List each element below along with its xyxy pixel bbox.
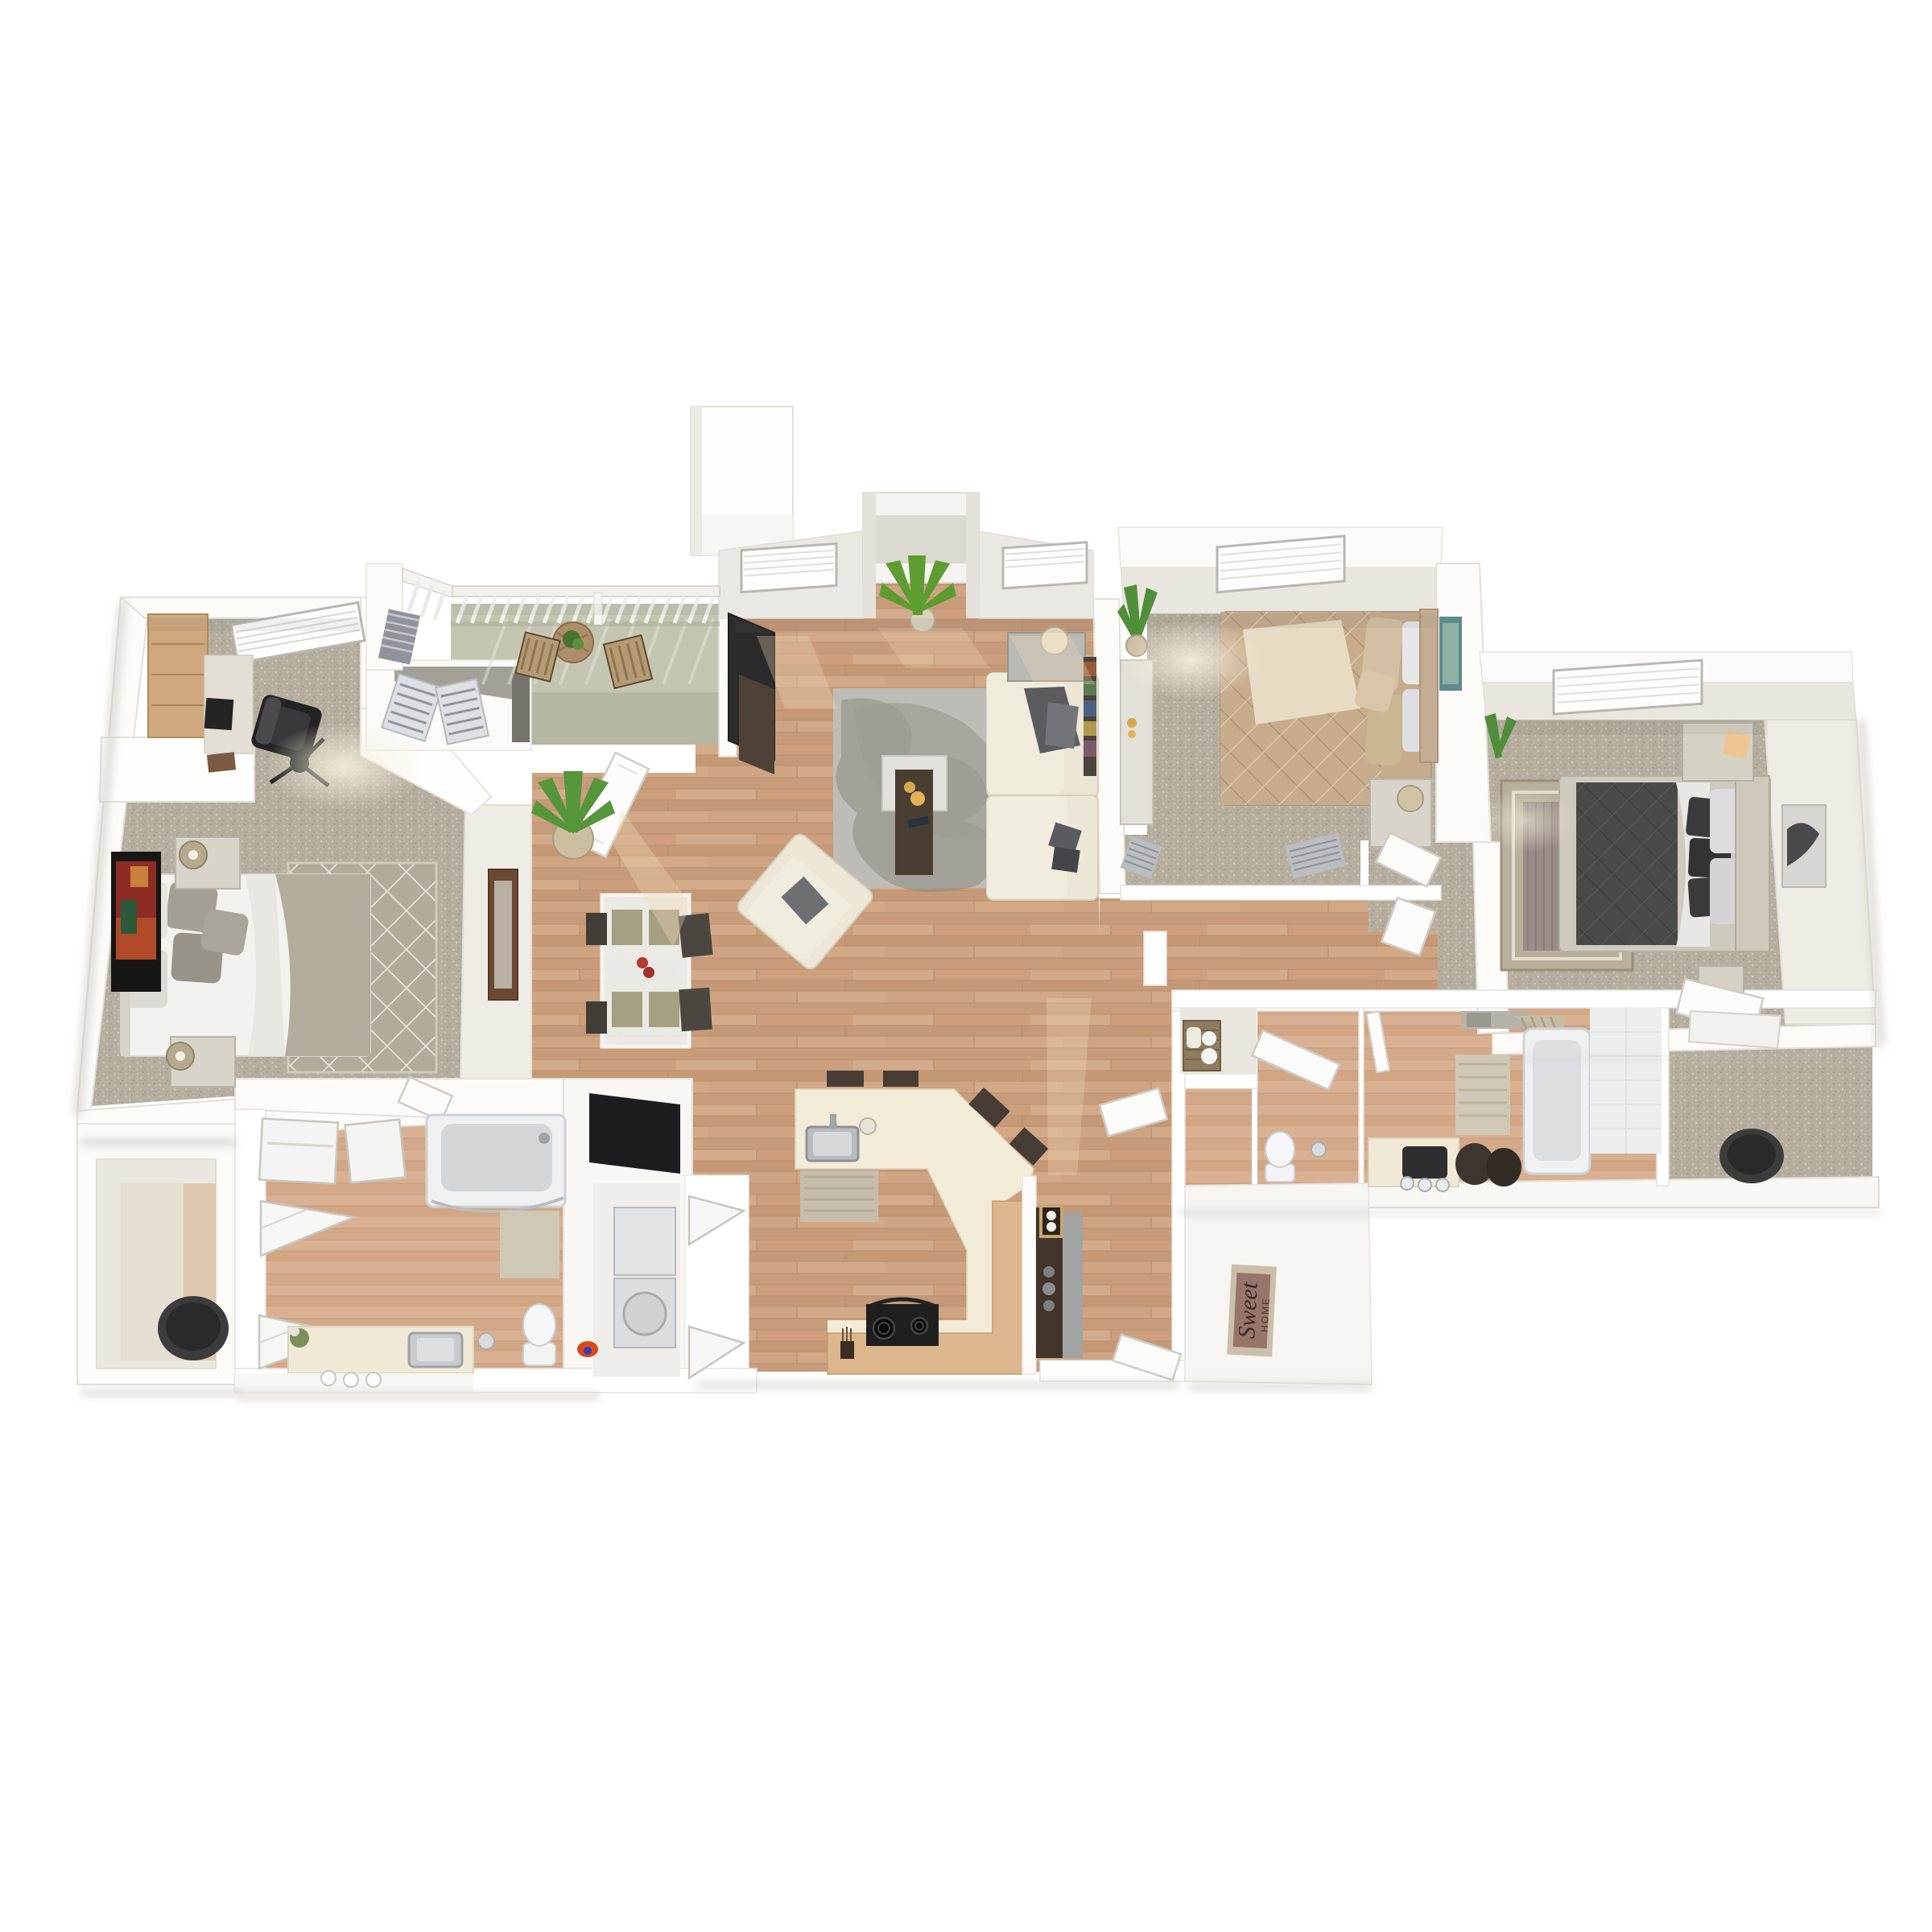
svg-text:HOME: HOME (1259, 1297, 1272, 1333)
